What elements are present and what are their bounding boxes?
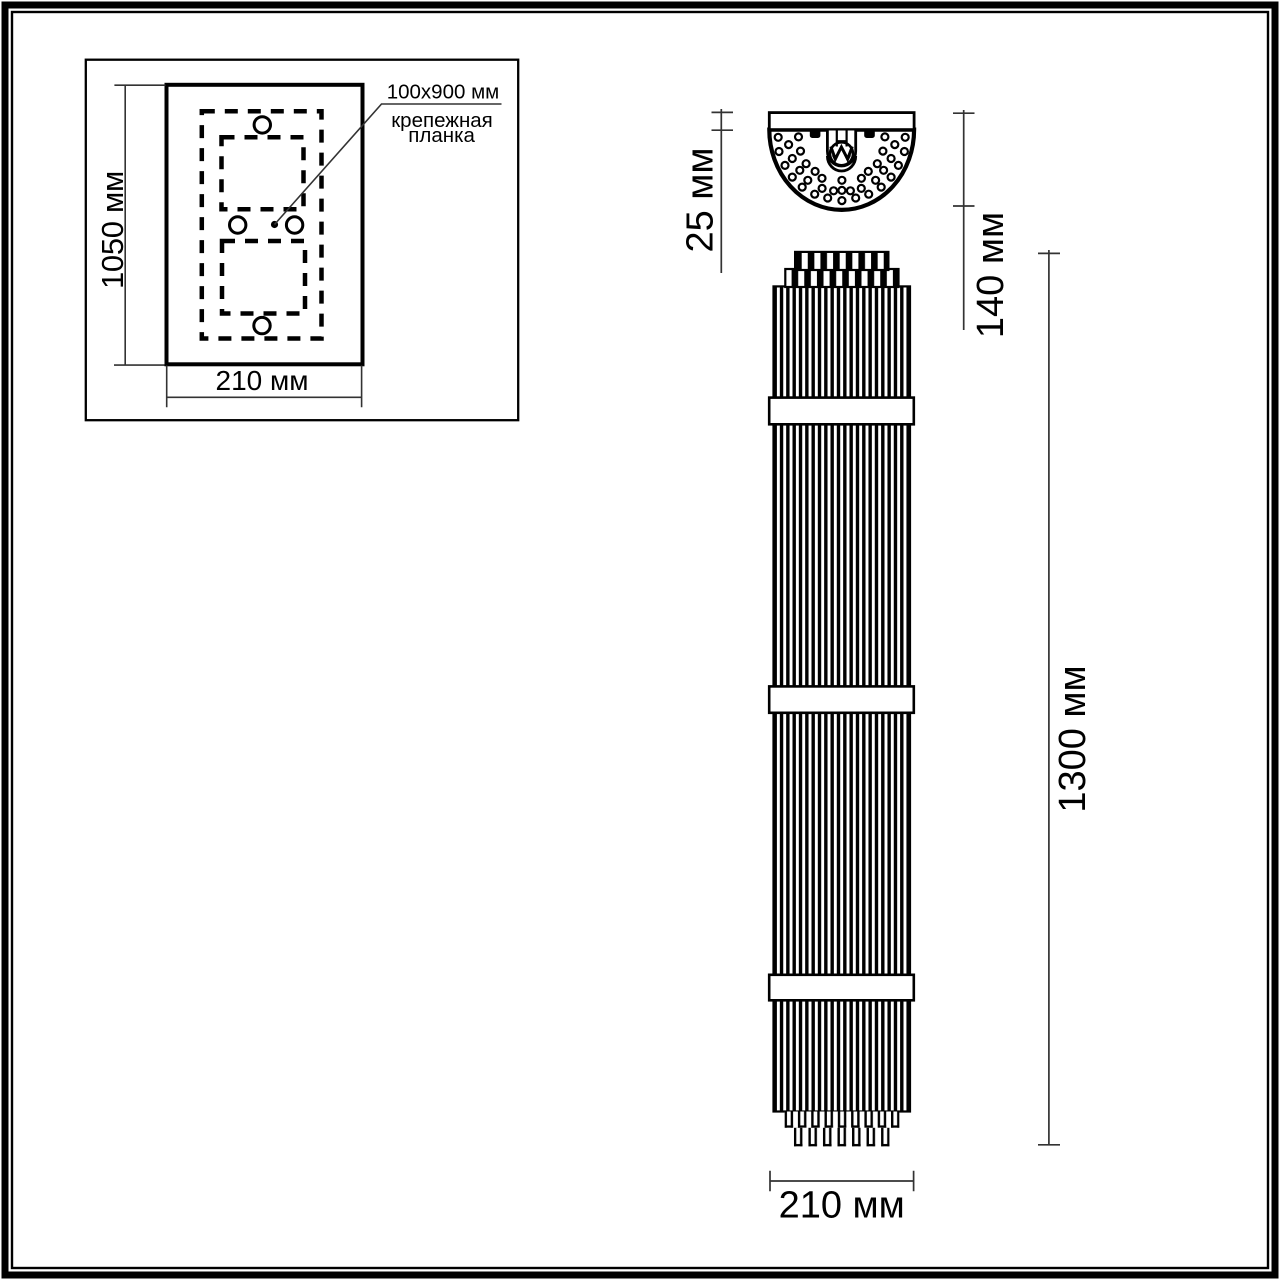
svg-text:100x900 мм: 100x900 мм <box>387 81 500 104</box>
svg-text:25 мм: 25 мм <box>680 147 722 252</box>
svg-text:1300 мм: 1300 мм <box>1052 665 1094 812</box>
svg-text:210 мм: 210 мм <box>216 365 309 396</box>
svg-text:планка: планка <box>408 124 475 147</box>
svg-text:140 мм: 140 мм <box>970 212 1012 338</box>
svg-text:210 мм: 210 мм <box>779 1185 905 1227</box>
svg-text:1050 мм: 1050 мм <box>95 171 130 289</box>
